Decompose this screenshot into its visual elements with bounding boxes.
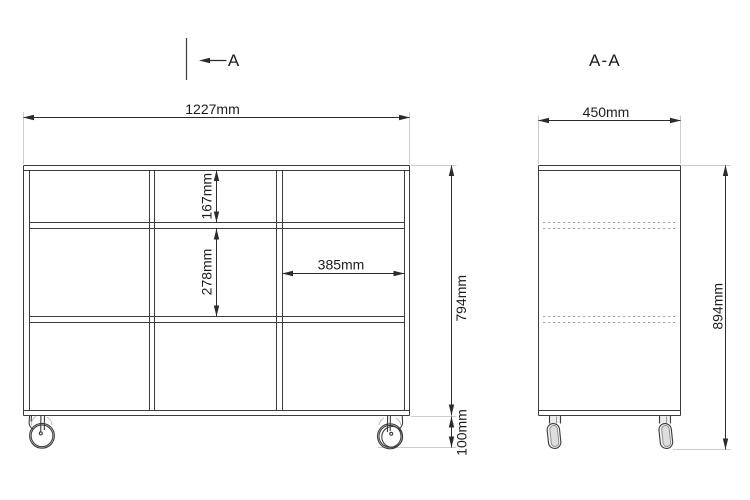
svg-text:A-A: A-A xyxy=(589,51,621,70)
svg-text:278mm: 278mm xyxy=(199,249,215,296)
svg-text:A: A xyxy=(228,51,240,70)
svg-text:1227mm: 1227mm xyxy=(185,101,239,117)
svg-text:100mm: 100mm xyxy=(454,409,470,456)
svg-text:385mm: 385mm xyxy=(318,257,365,273)
svg-text:794mm: 794mm xyxy=(453,275,469,322)
svg-text:450mm: 450mm xyxy=(583,104,630,120)
svg-text:894mm: 894mm xyxy=(710,283,726,330)
svg-text:167mm: 167mm xyxy=(199,173,215,220)
